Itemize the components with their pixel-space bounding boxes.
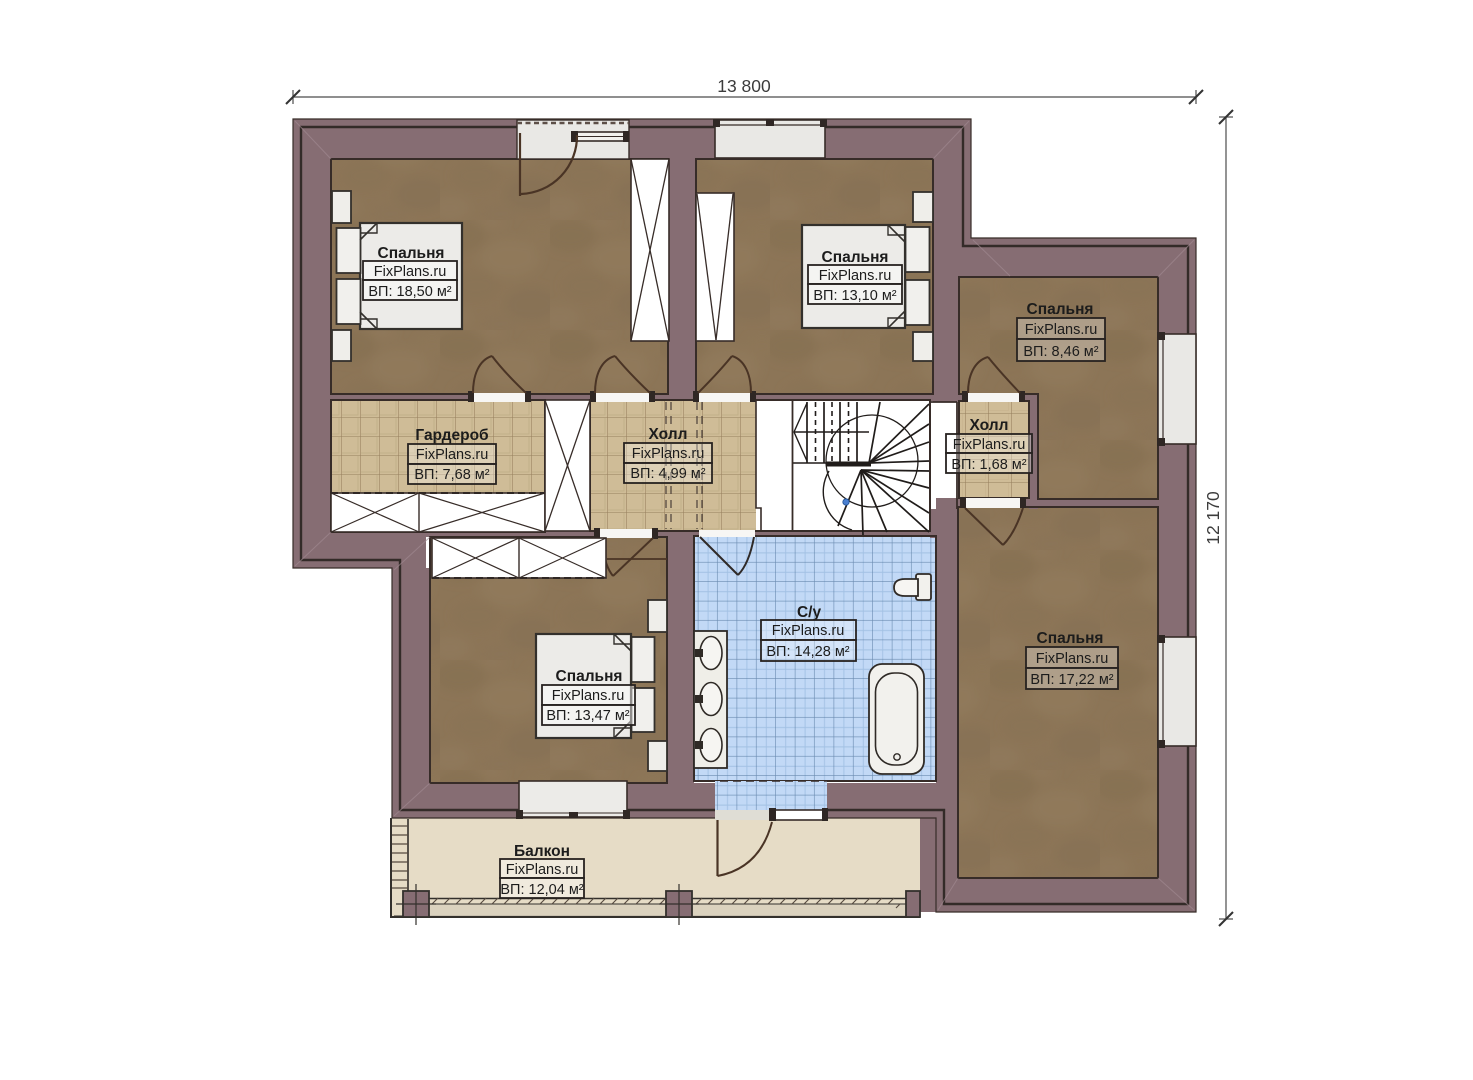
svg-text:Спальня: Спальня (556, 668, 623, 685)
svg-text:12 170: 12 170 (1203, 491, 1223, 545)
svg-text:ВП: 13,47 м²: ВП: 13,47 м² (546, 708, 629, 724)
svg-text:ВП: 7,68 м²: ВП: 7,68 м² (414, 467, 489, 483)
svg-text:ВП: 1,68 м²: ВП: 1,68 м² (951, 457, 1026, 473)
svg-text:FixPlans.ru: FixPlans.ru (1036, 651, 1109, 667)
svg-text:ВП: 13,10 м²: ВП: 13,10 м² (813, 288, 896, 304)
svg-text:FixPlans.ru: FixPlans.ru (506, 862, 579, 878)
svg-text:С/у: С/у (797, 604, 822, 621)
svg-text:FixPlans.ru: FixPlans.ru (552, 688, 625, 704)
svg-text:Холл: Холл (649, 426, 688, 443)
svg-text:FixPlans.ru: FixPlans.ru (772, 623, 845, 639)
svg-text:FixPlans.ru: FixPlans.ru (416, 447, 489, 463)
svg-text:ВП: 4,99 м²: ВП: 4,99 м² (630, 466, 705, 482)
svg-text:FixPlans.ru: FixPlans.ru (1025, 322, 1098, 338)
svg-text:ВП: 18,50 м²: ВП: 18,50 м² (368, 284, 451, 300)
svg-text:FixPlans.ru: FixPlans.ru (632, 446, 705, 462)
svg-text:ВП: 12,04 м²: ВП: 12,04 м² (500, 882, 583, 898)
svg-text:Спальня: Спальня (1037, 630, 1104, 647)
svg-text:Гардероб: Гардероб (415, 427, 488, 444)
svg-text:Балкон: Балкон (514, 843, 570, 860)
svg-text:ВП: 14,28 м²: ВП: 14,28 м² (766, 644, 849, 660)
svg-text:Спальня: Спальня (378, 245, 445, 262)
svg-text:FixPlans.ru: FixPlans.ru (953, 437, 1026, 453)
svg-text:ВП: 8,46 м²: ВП: 8,46 м² (1023, 344, 1098, 360)
svg-text:Холл: Холл (970, 417, 1009, 434)
svg-text:Спальня: Спальня (822, 249, 889, 266)
svg-text:FixPlans.ru: FixPlans.ru (374, 264, 447, 280)
svg-text:13 800: 13 800 (717, 76, 771, 96)
svg-text:Спальня: Спальня (1027, 301, 1094, 318)
svg-text:ВП: 17,22 м²: ВП: 17,22 м² (1030, 672, 1113, 688)
svg-text:FixPlans.ru: FixPlans.ru (819, 268, 892, 284)
